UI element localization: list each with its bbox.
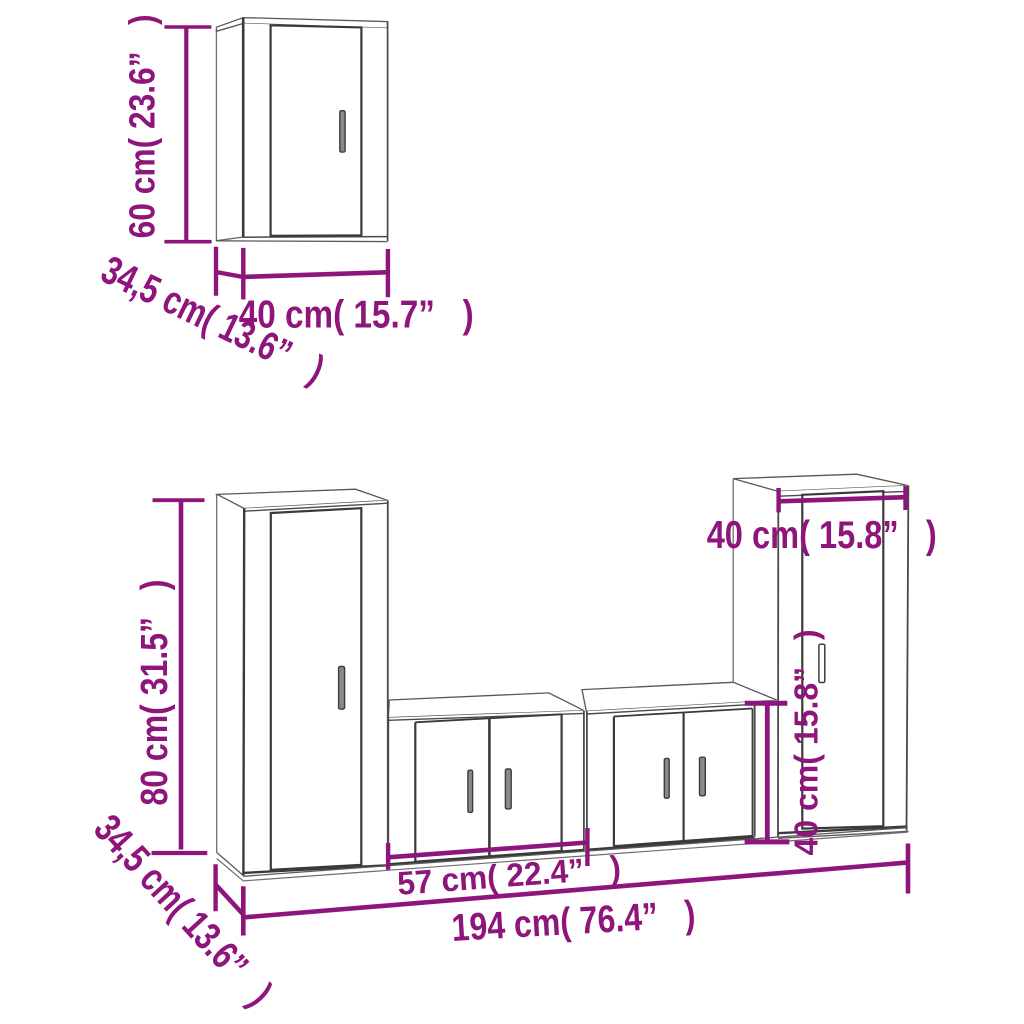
- svg-text:40 cm( 15.7” ): 40 cm( 15.7” ): [239, 294, 474, 337]
- svg-text:40 cm( 15.8” ): 40 cm( 15.8” ): [787, 630, 824, 856]
- svg-text:80 cm( 31.5” ): 80 cm( 31.5” ): [134, 580, 176, 806]
- svg-text:60 cm( 23.6” ): 60 cm( 23.6” ): [122, 14, 163, 238]
- svg-text:40 cm( 15.8” ): 40 cm( 15.8” ): [707, 514, 937, 557]
